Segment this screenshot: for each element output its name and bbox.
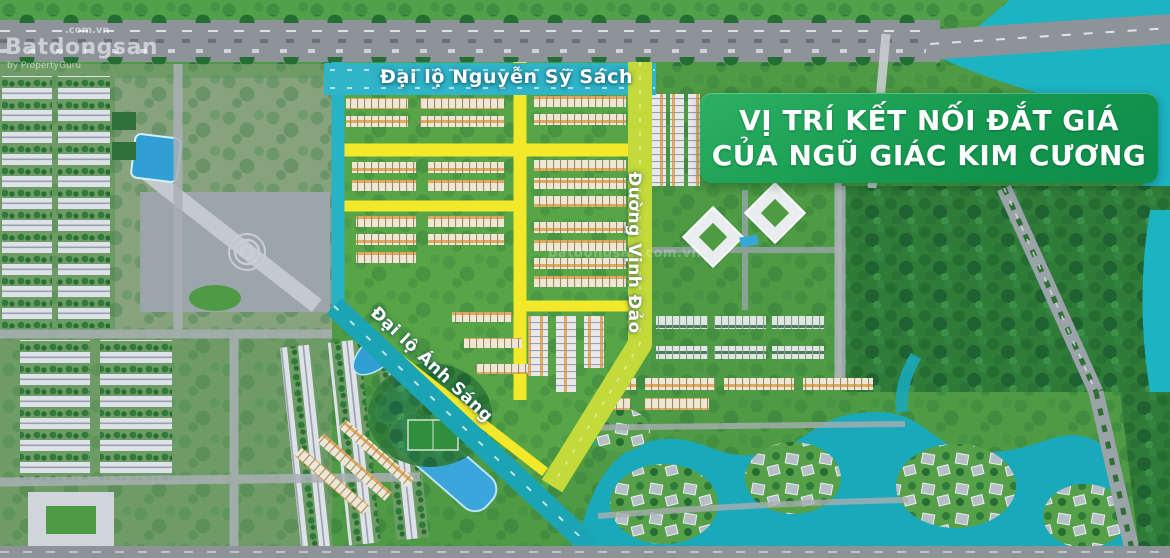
south-road [560, 424, 905, 428]
masterplan-screenshot: .com.vn Batdongsan by PropertyGuru batdo… [0, 0, 1170, 558]
watermark-brand: Batdongsan [5, 37, 158, 59]
road-label-nguyen-sy-sach: Đại lộ Nguyễn Sỹ Sách [380, 66, 633, 88]
bottom-road [0, 546, 1170, 558]
banner-line-1: VỊ TRÍ KẾT NỐI ĐẮT GIÁ [739, 105, 1119, 136]
watermark-byline: by PropertyGuru [7, 62, 158, 71]
headline-banner: VỊ TRÍ KẾT NỐI ĐẮT GIÁ CỦA NGŨ GIÁC KIM … [700, 93, 1158, 183]
watermark-batdongsan: .com.vn Batdongsan by PropertyGuru [5, 26, 158, 71]
road-label-vinh-dao: Đường Vịnh Đảo [624, 172, 644, 334]
banner-line-2: CỦA NGŨ GIÁC KIM CƯƠNG [712, 140, 1147, 171]
forest-park [842, 186, 1170, 392]
